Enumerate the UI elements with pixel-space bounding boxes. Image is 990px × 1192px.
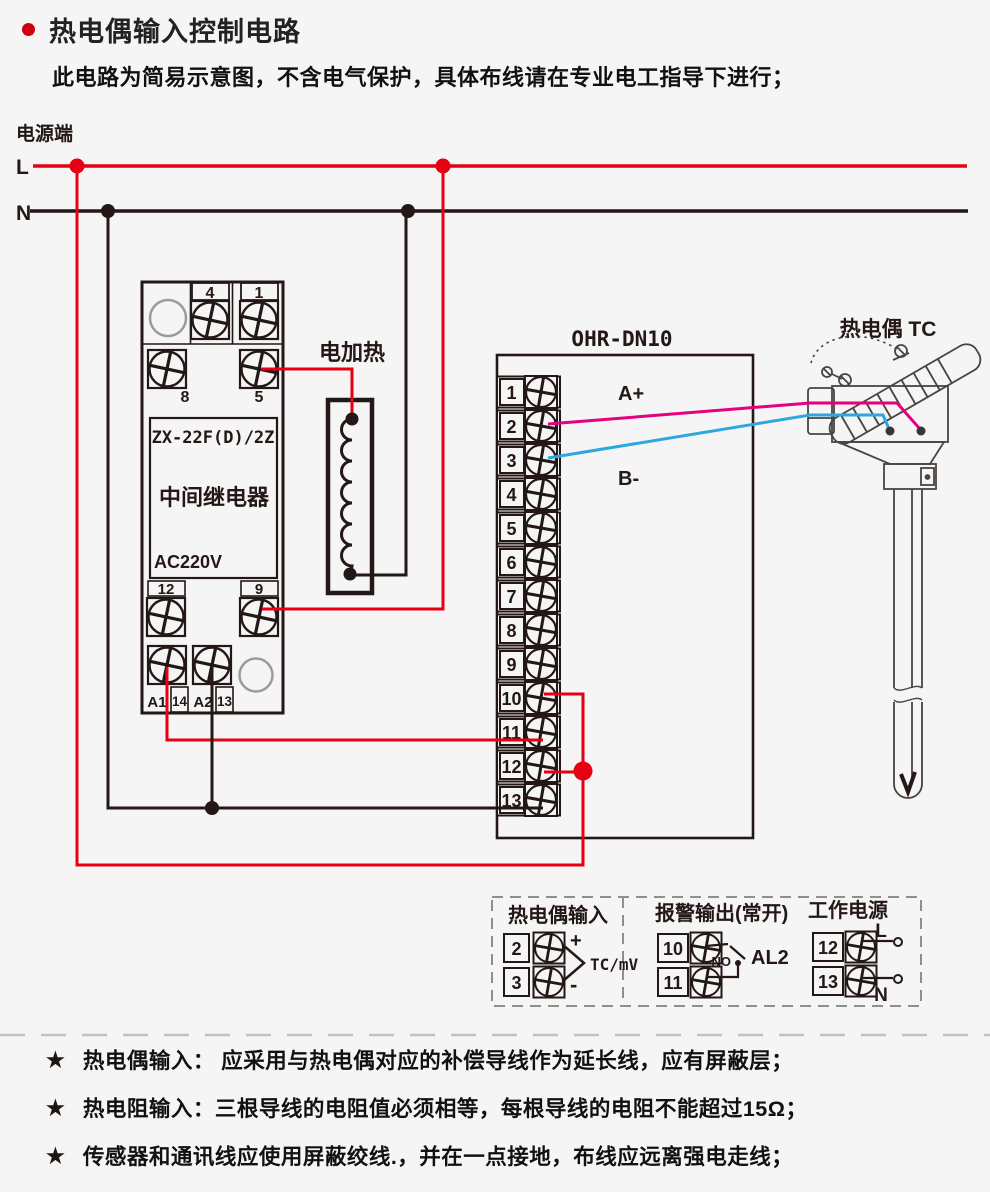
- controller-component: OHR-DN10 1 2 3 4 5 6 7 8 9 10 11 12 13 A…: [497, 327, 753, 838]
- line-l-label: L: [16, 156, 29, 179]
- legend-terminal-2: 2: [511, 939, 521, 959]
- legend-alarm-output: 报警输出(常开) 10 11 NO AL2: [655, 901, 789, 998]
- controller-terminal-block: 1 2 3 4 5 6 7 8 9 10 11 12 13: [497, 375, 560, 818]
- black-wires: [108, 214, 543, 808]
- legend-terminal-11: 11: [663, 973, 682, 993]
- legend-tc-input: 热电偶输入 2 + 3 - TC/mV: [504, 903, 639, 998]
- wire-b-minus-label: B-: [618, 468, 639, 490]
- legend-l-label: L: [875, 921, 887, 942]
- relay-screw-4: [189, 299, 231, 341]
- body-screw-icon: [839, 374, 851, 386]
- controller-terminal-3: 3: [506, 451, 516, 471]
- legend-n-label: N: [874, 985, 888, 1006]
- relay-screw-12: [145, 596, 187, 638]
- note-row-2: ★ 热电阻输入：三根导线的电阻值必须相等，每根导线的电阻不能超过15Ω；: [46, 1096, 966, 1123]
- star-icon: ★: [46, 1144, 65, 1170]
- wiring-diagram: 电源端 L N 4 1 8 5 ZX-22F(D)/2Z 中间继电器 AC220…: [0, 0, 990, 1183]
- controller-terminal-8: 8: [506, 621, 516, 641]
- thermocouple-probe: [894, 489, 922, 798]
- note-text-3: 传感器和通讯线应使用屏蔽绞线.，并在一点接地，布线应远离强电走线；: [83, 1144, 793, 1171]
- controller-terminal-12: 12: [501, 757, 521, 777]
- legend-alarm-title: 报警输出(常开): [655, 901, 788, 925]
- wire-a-plus-label: A+: [618, 383, 644, 405]
- relay-terminal-a1: A1: [147, 694, 166, 711]
- legend-no-label: NO: [712, 954, 732, 969]
- relay-terminal-5: 5: [255, 389, 264, 406]
- controller-terminal-9: 9: [506, 655, 516, 675]
- controller-terminal-6: 6: [506, 553, 516, 573]
- relay-indicator-top: [150, 300, 186, 336]
- legend-al2-label: AL2: [751, 947, 789, 969]
- relay-terminal-8: 8: [181, 389, 190, 406]
- note-text-1: 热电偶输入： 应采用与热电偶对应的补偿导线作为延长线，应有屏蔽层；: [83, 1048, 793, 1075]
- relay-name: 中间继电器: [159, 485, 270, 510]
- thermocouple-label: 热电偶 TC: [840, 317, 937, 341]
- heater-label: 电加热: [319, 340, 385, 365]
- legend-supply: 工作电源 12 L 13 N: [808, 898, 902, 1006]
- footnotes: ★ 热电偶输入： 应采用与热电偶对应的补偿导线作为延长线，应有屏蔽层； ★ 热电…: [46, 1048, 966, 1192]
- relay-component: 4 1 8 5 ZX-22F(D)/2Z 中间继电器 AC220V 12 9 A…: [142, 282, 283, 713]
- legend-terminal-10: 10: [663, 939, 683, 959]
- controller-terminal-10: 10: [501, 689, 521, 709]
- wire-b-minus: [548, 415, 889, 458]
- legend-tc-signal: TC/mV: [590, 955, 639, 974]
- star-icon: ★: [46, 1096, 65, 1122]
- legend: 热电偶输入 2 + 3 - TC/mV 报警输出(常开) 10 11: [492, 897, 921, 1006]
- legend-minus-sign: -: [570, 972, 577, 997]
- cap-screw-icon: [893, 345, 909, 360]
- controller-terminal-5: 5: [506, 519, 516, 539]
- controller-terminal-2: 2: [506, 417, 516, 437]
- relay-voltage: AC220V: [154, 552, 222, 572]
- power-source-label: 电源端: [16, 122, 73, 145]
- controller-model: OHR-DN10: [571, 327, 672, 351]
- relay-terminal-13: 13: [217, 694, 233, 709]
- thermocouple-drawing: 热电偶 TC: [808, 317, 985, 798]
- relay-terminal-14: 14: [172, 694, 188, 709]
- relay-terminal-1: 1: [255, 285, 264, 302]
- relay-screw-1: [238, 299, 280, 341]
- relay-terminal-a2: A2: [193, 694, 212, 711]
- relay-screw-8: [146, 348, 188, 390]
- thermocouple-body-taper: [838, 442, 944, 464]
- controller-terminal-7: 7: [506, 587, 516, 607]
- relay-terminal-9: 9: [255, 581, 263, 598]
- relay-terminal-4: 4: [206, 285, 215, 302]
- legend-terminal-13: 13: [818, 972, 838, 992]
- legend-tc-input-title: 热电偶输入: [508, 903, 608, 927]
- controller-terminal-1: 1: [506, 383, 516, 403]
- controller-terminal-4: 4: [506, 485, 516, 505]
- heater-coil: [342, 419, 352, 573]
- legend-terminal-12: 12: [818, 938, 838, 958]
- relay-screw-9: [238, 596, 280, 638]
- legend-plus-sign: +: [570, 930, 582, 952]
- power-lines: [30, 166, 968, 211]
- star-icon: ★: [46, 1048, 65, 1074]
- relay-model: ZX-22F(D)/2Z: [152, 428, 275, 448]
- relay-terminal-12: 12: [158, 581, 175, 598]
- line-n-label: N: [16, 202, 31, 225]
- note-text-2: 热电阻输入：三根导线的电阻值必须相等，每根导线的电阻不能超过15Ω；: [83, 1096, 808, 1123]
- note-row-1: ★ 热电偶输入： 应采用与热电偶对应的补偿导线作为延长线，应有屏蔽层；: [46, 1048, 966, 1075]
- note-row-3: ★ 传感器和通讯线应使用屏蔽绞线.，并在一点接地，布线应远离强电走线；: [46, 1144, 966, 1171]
- probe-tip-v-mark: [901, 772, 915, 792]
- relay-indicator-bottom: [240, 659, 273, 692]
- legend-terminal-3: 3: [511, 973, 521, 993]
- legend-supply-title: 工作电源: [808, 898, 888, 922]
